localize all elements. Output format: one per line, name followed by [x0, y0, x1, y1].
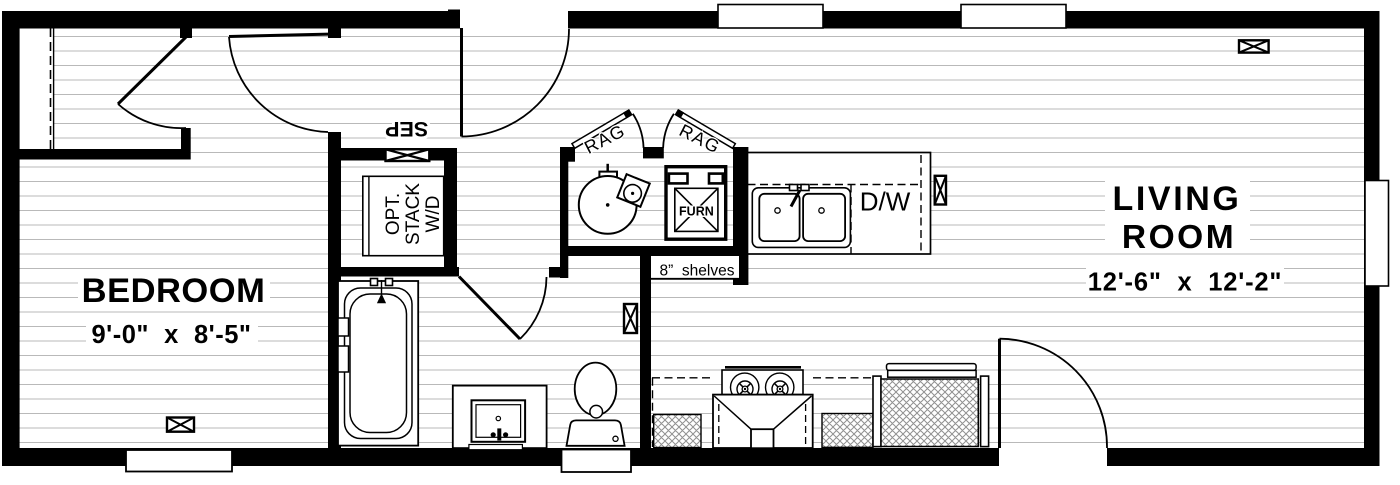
- svg-text:LIVING: LIVING: [1113, 180, 1242, 218]
- svg-text:9'-0" x 8'-5": 9'-0" x 8'-5": [91, 321, 251, 349]
- svg-text:FURN: FURN: [679, 205, 714, 219]
- svg-text:BEDROOM: BEDROOM: [82, 272, 266, 310]
- svg-text:SEP: SEP: [385, 117, 428, 141]
- svg-text:12'-6" x 12'-2": 12'-6" x 12'-2": [1088, 269, 1283, 297]
- svg-text:8” shelves: 8” shelves: [660, 263, 735, 280]
- svg-text:ROOM: ROOM: [1122, 219, 1236, 256]
- svg-text:D/W: D/W: [860, 187, 911, 217]
